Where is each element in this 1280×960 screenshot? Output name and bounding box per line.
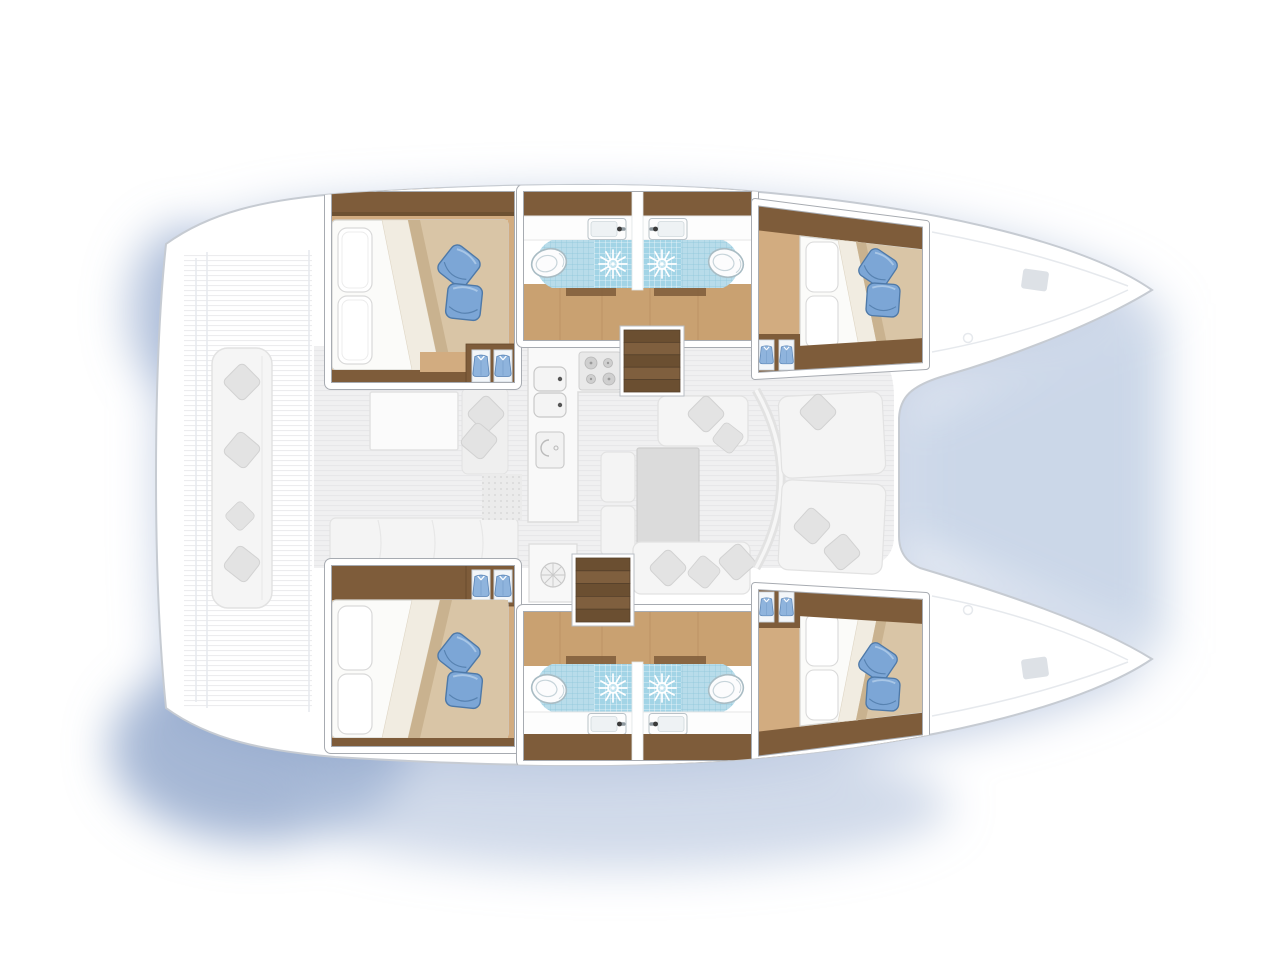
bathroom-cabinet [643,188,755,218]
bathrooms-port [520,186,755,344]
hanging-shirt-icon [760,598,774,616]
bed-pillow [806,242,838,292]
hull-corridor-floor [520,608,755,666]
stair-step [624,330,680,342]
bathroom-cabinet [520,188,632,218]
hanging-shirt-icon [780,346,794,364]
bed-pillow [806,614,838,666]
forward-seat [778,391,886,478]
bathroom-divider-wall [632,662,643,766]
bed-pillow [806,296,838,348]
hanging-shirt-icon [760,346,774,364]
cabin-forward-port [755,202,926,376]
dinette-seat [601,452,635,502]
bed-pillow [338,228,372,292]
cabin-forward-starboard [755,586,926,760]
cabin-aft-starboard [328,562,518,750]
hanging-shirt-icon [473,575,489,596]
bathroom-cabinet [643,734,755,764]
bathrooms-starboard [520,608,755,766]
galley-stove [579,352,621,390]
blue-pillow-icon [866,677,901,712]
hanging-shirt-icon [780,598,794,616]
bathroom-cabinet [520,734,632,764]
stair-step [576,558,630,571]
blue-pillow-icon [445,671,483,709]
washbasin-icon [649,219,687,240]
floorplan-canvas [0,0,1280,960]
washbasin-icon [588,714,626,735]
hanging-shirt-icon [495,355,511,376]
cabin-aft-port [328,188,518,386]
stairs-starboard [572,554,634,626]
bathroom-divider-wall [632,186,643,290]
bed-pillow [806,670,838,720]
stairs-port [620,326,684,396]
bed-pillow [338,296,372,364]
blue-pillow-icon [866,283,901,318]
hanging-shirt-icon [495,575,511,596]
blue-pillow-icon [445,283,483,321]
catamaran-floor-plan [0,0,1280,960]
hanging-shirt-icon [473,355,489,376]
cockpit-table [370,392,458,450]
anchor-cleat-icon [1021,268,1050,291]
bed-pillow [338,606,372,670]
bed-pillow [338,674,372,734]
washbasin-icon [649,714,687,735]
washbasin-icon [588,219,626,240]
deck-fitting-icon [964,334,973,343]
galley-appliance [536,432,564,468]
